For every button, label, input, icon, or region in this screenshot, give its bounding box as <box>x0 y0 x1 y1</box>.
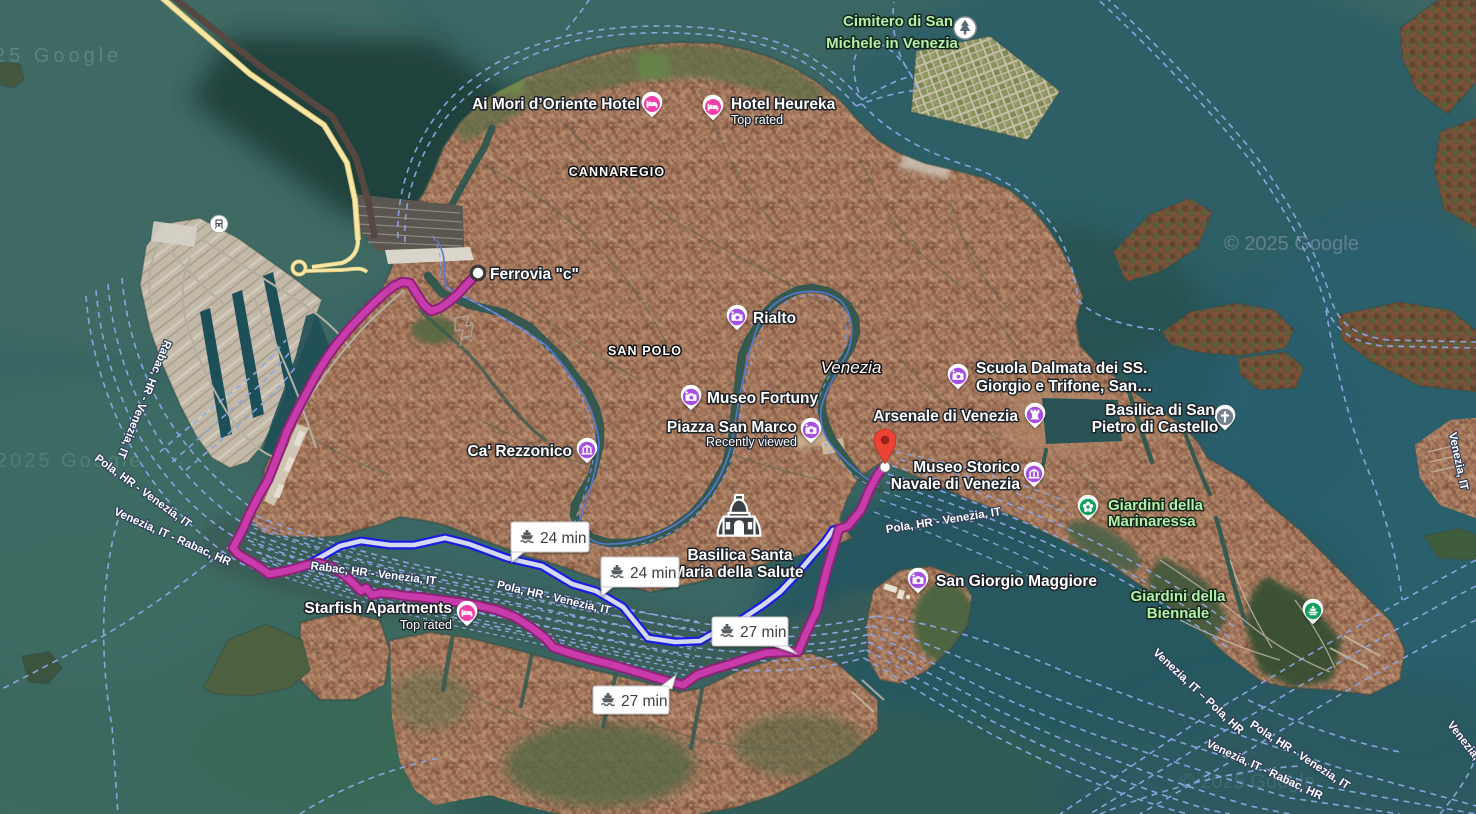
svg-text:© 2025 Google: © 2025 Google <box>1224 233 1359 255</box>
svg-text:24 min: 24 min <box>540 530 587 547</box>
svg-text:Rialto: Rialto <box>753 310 796 327</box>
svg-text:Giorgio e Trifone, San…: Giorgio e Trifone, San… <box>976 378 1153 395</box>
svg-text:Basilica Santa: Basilica Santa <box>687 547 792 564</box>
svg-text:Top rated: Top rated <box>731 113 783 127</box>
svg-text:Biennale: Biennale <box>1147 605 1210 622</box>
svg-text:Recently viewed: Recently viewed <box>706 435 797 449</box>
svg-text:Venezia: Venezia <box>821 358 882 377</box>
svg-text:24 min: 24 min <box>630 565 677 582</box>
svg-text:Museo Fortuny: Museo Fortuny <box>707 390 818 407</box>
svg-text:Starfish Apartments: Starfish Apartments <box>304 600 452 617</box>
svg-text:Giardini della: Giardini della <box>1108 497 1204 514</box>
svg-text:Basilica di San: Basilica di San <box>1105 402 1214 419</box>
svg-text:27 min: 27 min <box>621 693 668 710</box>
svg-text:Michele in Venezia: Michele in Venezia <box>826 35 958 52</box>
svg-text:San Giorgio Maggiore: San Giorgio Maggiore <box>936 573 1097 590</box>
svg-text:Scuola Dalmata dei SS.: Scuola Dalmata dei SS. <box>976 360 1147 377</box>
svg-text:Navale di Venezia: Navale di Venezia <box>891 476 1021 493</box>
svg-text:Pietro di Castello: Pietro di Castello <box>1092 419 1219 436</box>
svg-text:Hotel Heureka: Hotel Heureka <box>731 96 836 113</box>
svg-text:Maria della Salute: Maria della Salute <box>673 564 804 581</box>
svg-text:Ca' Rezzonico: Ca' Rezzonico <box>468 443 572 460</box>
svg-text:CANNAREGIO: CANNAREGIO <box>569 165 665 179</box>
svg-text:Marinaressa: Marinaressa <box>1108 513 1196 530</box>
svg-text:Giardini della: Giardini della <box>1130 588 1226 605</box>
svg-text:Museo Storico: Museo Storico <box>913 459 1020 476</box>
svg-text:27 min: 27 min <box>740 624 787 641</box>
svg-text:25 Google: 25 Google <box>0 45 122 67</box>
svg-text:Piazza San Marco: Piazza San Marco <box>667 419 797 436</box>
svg-text:Ai Mori d’Oriente Hotel: Ai Mori d’Oriente Hotel <box>472 96 640 113</box>
svg-text:Cimitero di San: Cimitero di San <box>843 13 953 30</box>
svg-text:Ferrovia "c": Ferrovia "c" <box>490 266 579 283</box>
svg-text:2025 Google: 2025 Google <box>0 450 144 472</box>
svg-text:Top rated: Top rated <box>400 618 452 632</box>
svg-text:SAN POLO: SAN POLO <box>608 344 682 358</box>
svg-text:Arsenale di Venezia: Arsenale di Venezia <box>873 408 1018 425</box>
svg-text:© 2025 Google: © 2025 Google <box>1180 771 1315 793</box>
